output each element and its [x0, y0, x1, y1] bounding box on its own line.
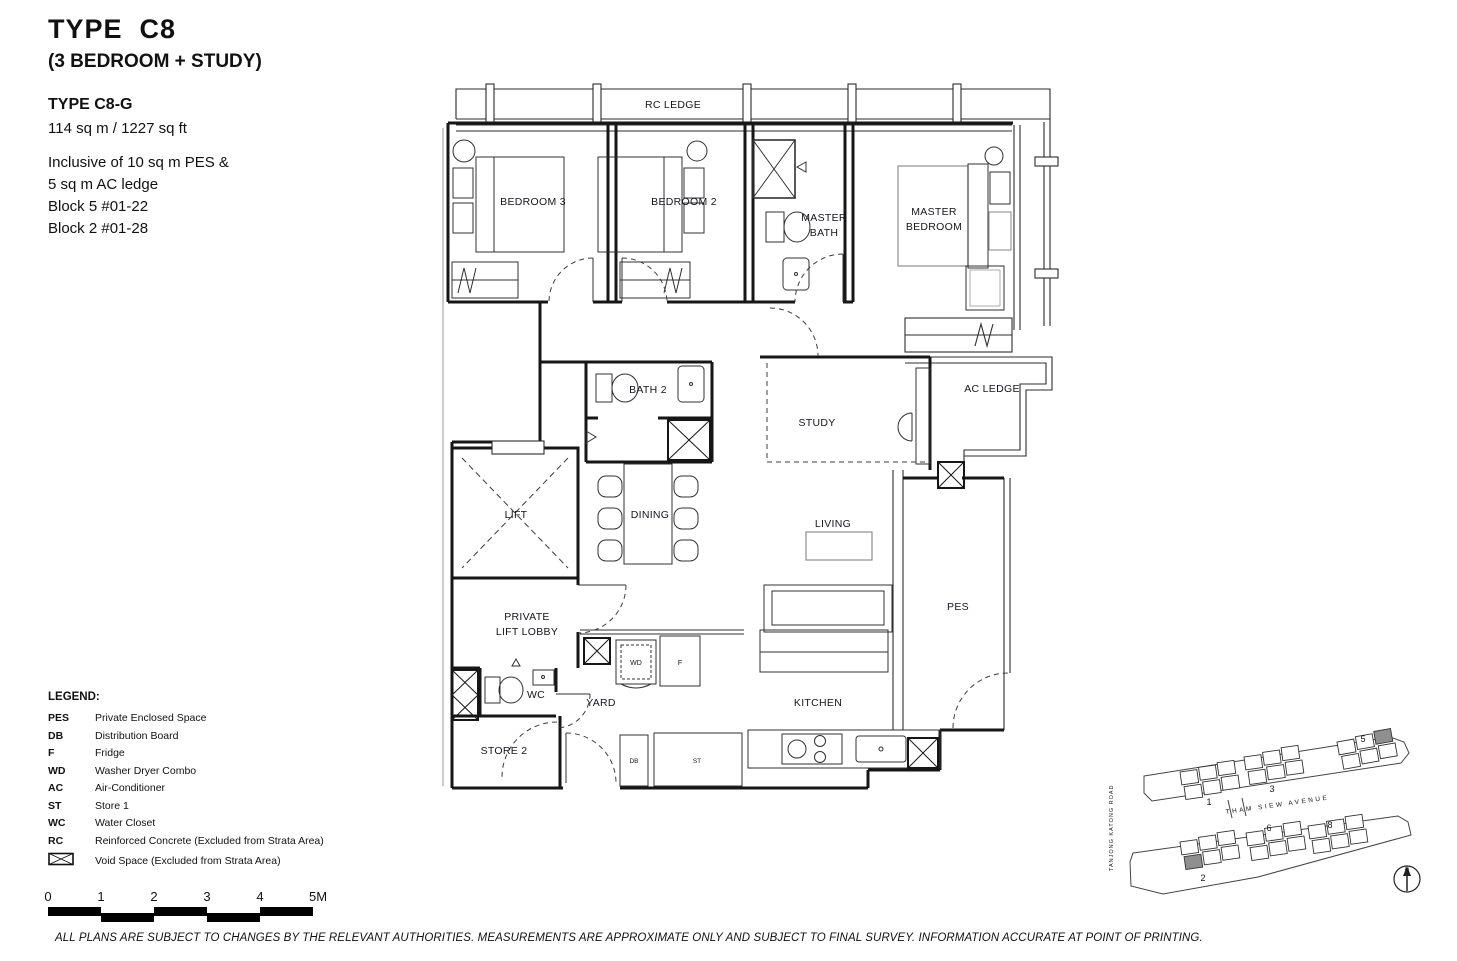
master-bedroom-furniture: [806, 147, 1011, 560]
road-label-tanjong-katong-road: TANJONG KATONG ROAD: [1109, 784, 1115, 871]
legend-abbr: WC: [48, 817, 95, 829]
unit-variant: TYPE C8-G: [48, 96, 187, 114]
room-label-kitchen: KITCHEN: [794, 697, 842, 709]
legend-desc: Distribution Board: [95, 730, 178, 742]
rc-ledge-ticks: [486, 84, 1058, 278]
room-label-master-bedroom-1: MASTER: [911, 206, 957, 218]
page-title: TYPE C8: [48, 14, 262, 45]
title-block: TYPE C8 (3 BEDROOM + STUDY): [48, 14, 262, 73]
scale-segment: [101, 913, 154, 922]
disclaimer-text: ALL PLANS ARE SUBJECT TO CHANGES BY THE …: [55, 932, 1203, 944]
legend-title: LEGEND:: [48, 691, 378, 703]
legend-desc: Void Space (Excluded from Strata Area): [95, 855, 281, 867]
legend-row: DB Distribution Board: [48, 730, 378, 742]
room-label-master-bedroom-2: BEDROOM: [906, 221, 962, 233]
room-label-master-bath-1: MASTER: [801, 212, 847, 224]
legend-abbr: WD: [48, 765, 95, 777]
room-label-private-lift-lobby-1: PRIVATE: [504, 611, 549, 623]
void-space-icon: [48, 852, 95, 869]
north-compass-icon: N: [1394, 866, 1420, 892]
note-line: Block 5 #01-22: [48, 196, 229, 218]
scale-label: 2: [150, 889, 157, 904]
legend-desc: Air-Conditioner: [95, 782, 165, 794]
room-label-lift: LIFT: [505, 509, 528, 521]
floorplan-page: RC LEDGE BEDROOM 3 BEDROOM 2 MASTER BATH…: [0, 0, 1457, 961]
scale-label: 3: [203, 889, 210, 904]
site-block-label-6: 6: [1266, 823, 1271, 833]
site-plan: 1 3 5 2 6 8 THAM SIEW AVENUE TANJONG KAT…: [1109, 728, 1420, 894]
legend-desc: Water Closet: [95, 817, 155, 829]
room-label-bedroom-2: BEDROOM 2: [651, 196, 717, 208]
variant-block: TYPE C8-G 114 sq m / 1227 sq ft: [48, 96, 187, 137]
legend-row: WD Washer Dryer Combo: [48, 765, 378, 777]
legend-row: ST Store 1: [48, 800, 378, 812]
site-block-label-1: 1: [1206, 797, 1211, 807]
scale-label: 5M: [309, 889, 327, 904]
site-block-label-5: 5: [1360, 734, 1365, 744]
legend-row: RC Reinforced Concrete (Excluded from St…: [48, 835, 378, 847]
room-label-store-2: STORE 2: [481, 745, 528, 757]
room-label-pes: PES: [947, 601, 969, 613]
room-label-bath-2: BATH 2: [629, 384, 667, 396]
scale-bar: 0 1 2 3 4 5M: [48, 889, 378, 925]
scale-label: 4: [256, 889, 263, 904]
scale-segment: [207, 913, 260, 922]
legend-abbr: PES: [48, 712, 95, 724]
room-label-wc: WC: [527, 689, 545, 701]
site-block-cluster-8: [1307, 814, 1368, 854]
legend-abbr: F: [48, 747, 95, 759]
label-db: DB: [629, 758, 638, 765]
room-label-ac-ledge: AC LEDGE: [964, 383, 1020, 395]
room-label-rc-ledge: RC LEDGE: [645, 99, 701, 111]
site-block-clusters: [1179, 728, 1398, 870]
legend-row: Void Space (Excluded from Strata Area): [48, 852, 378, 869]
legend-abbr: ST: [48, 800, 95, 812]
scale-segment: [48, 907, 101, 916]
legend: LEGEND: PES Private Enclosed Space DB Di…: [48, 691, 378, 875]
room-label-bedroom-3: BEDROOM 3: [500, 196, 566, 208]
road-label-tham-siew-avenue: THAM SIEW AVENUE: [1225, 795, 1329, 816]
site-block-cluster-1: [1179, 760, 1240, 800]
room-label-study: STUDY: [798, 417, 835, 429]
room-label-living: LIVING: [815, 518, 851, 530]
site-block-label-8: 8: [1327, 820, 1332, 830]
note-line: Block 2 #01-28: [48, 218, 229, 240]
unit-area: 114 sq m / 1227 sq ft: [48, 120, 187, 137]
note-line: Inclusive of 10 sq m PES &: [48, 152, 229, 174]
legend-row: PES Private Enclosed Space: [48, 712, 378, 724]
label-f: F: [678, 660, 682, 667]
scale-segment: [260, 907, 313, 916]
site-block-cluster-5: [1336, 728, 1398, 769]
page-subtitle: (3 BEDROOM + STUDY): [48, 51, 262, 73]
room-label-private-lift-lobby-2: LIFT LOBBY: [496, 626, 558, 638]
legend-abbr: DB: [48, 730, 95, 742]
room-label-master-bath-2: BATH: [810, 227, 838, 239]
label-st: ST: [693, 758, 701, 765]
site-block-label-2: 2: [1200, 873, 1205, 883]
legend-row: WC Water Closet: [48, 817, 378, 829]
scale-label: 1: [97, 889, 104, 904]
legend-desc: Private Enclosed Space: [95, 712, 206, 724]
note-line: 5 sq m AC ledge: [48, 174, 229, 196]
site-block-label-3: 3: [1269, 784, 1274, 794]
room-labels: RC LEDGE BEDROOM 3 BEDROOM 2 MASTER BATH…: [481, 99, 1020, 765]
compass-n-label: N: [1405, 867, 1410, 874]
room-label-dining: DINING: [631, 509, 670, 521]
legend-abbr: AC: [48, 782, 95, 794]
unit-notes: Inclusive of 10 sq m PES & 5 sq m AC led…: [48, 152, 229, 240]
legend-desc: Reinforced Concrete (Excluded from Strat…: [95, 835, 324, 847]
legend-row: AC Air-Conditioner: [48, 782, 378, 794]
legend-desc: Washer Dryer Combo: [95, 765, 196, 777]
site-block-cluster-6: [1245, 821, 1306, 861]
scale-segment: [154, 907, 207, 916]
site-block-cluster-2: [1179, 830, 1240, 870]
scale-label: 0: [44, 889, 51, 904]
legend-abbr: RC: [48, 835, 95, 847]
legend-desc: Fridge: [95, 747, 125, 759]
room-label-yard: YARD: [586, 697, 616, 709]
legend-row: F Fridge: [48, 747, 378, 759]
label-wd: WD: [630, 660, 642, 667]
legend-desc: Store 1: [95, 800, 129, 812]
